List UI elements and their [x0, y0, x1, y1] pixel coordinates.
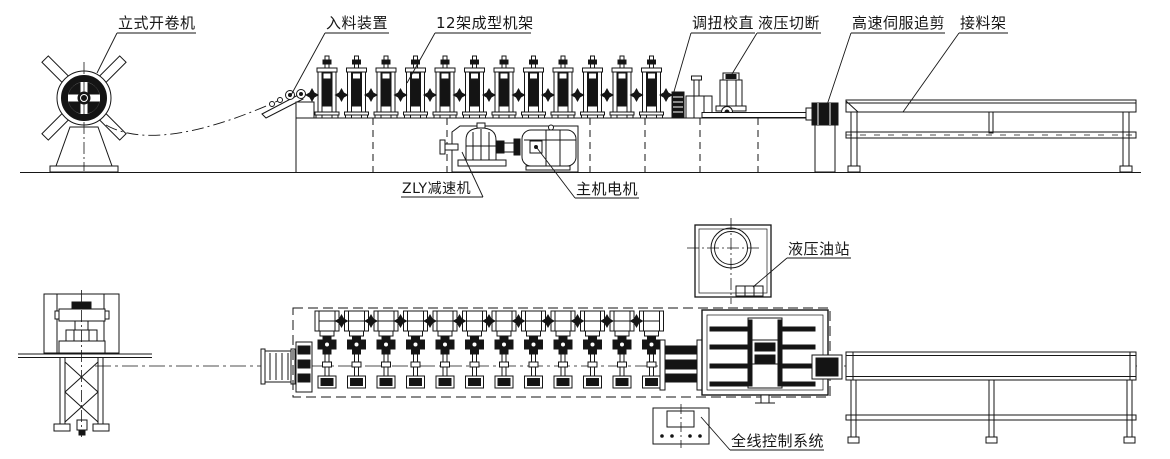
elevation-view: 立式开卷机 入料装置 12架成型机架 调扭校直 液压切断 高速伺服追剪	[20, 14, 1141, 198]
label-uncoiler-text: 立式开卷机	[118, 14, 196, 32]
label-reducer-text: ZLY减速机	[402, 181, 471, 197]
oil-station-plan	[687, 218, 771, 304]
strip-line	[106, 99, 282, 135]
label-infeed-text: 入料装置	[326, 14, 388, 32]
forming-stands-plan	[315, 311, 664, 388]
label-oil-station-text: 液压油站	[788, 240, 850, 258]
label-servo-shear: 高速伺服追剪	[827, 14, 945, 105]
label-control-system-text: 全线控制系统	[731, 432, 824, 450]
entry-pinch-plan	[296, 342, 312, 392]
label-straightener-text: 调扭校直	[692, 14, 754, 32]
label-outfeed-rack-text: 接料架	[960, 14, 1007, 32]
uncoiler-elevation	[42, 56, 126, 172]
plan-view: 液压油站 全线控制系统	[18, 218, 1140, 450]
servo-shear-plan	[702, 310, 842, 403]
hydraulic-cutoff-elevation	[716, 73, 746, 118]
infeed-guide-plan	[261, 349, 295, 384]
uncoiler-plan	[18, 290, 152, 437]
label-infeed: 入料装置	[290, 14, 389, 97]
forming-stands-elevation	[305, 56, 673, 118]
outfeed-rack-plan	[846, 352, 1136, 443]
label-servo-shear-text: 高速伺服追剪	[852, 14, 945, 32]
label-control-system: 全线控制系统	[701, 417, 824, 450]
control-cabinet-plan	[653, 404, 709, 448]
infeed-device-elevation	[262, 90, 314, 119]
label-straightener: 调扭校直	[673, 14, 755, 95]
outfeed-rack-elevation	[846, 100, 1136, 172]
label-forming-stands-text: 12架成型机架	[436, 14, 534, 32]
label-main-motor-text: 主机电机	[576, 180, 638, 198]
straightener-elevation	[672, 76, 712, 118]
straightener-plan	[660, 340, 702, 390]
machine-line-drawing: 立式开卷机 入料装置 12架成型机架 调扭校直 液压切断 高速伺服追剪	[0, 0, 1170, 459]
label-hydraulic-cutoff-text: 液压切断	[758, 14, 820, 32]
